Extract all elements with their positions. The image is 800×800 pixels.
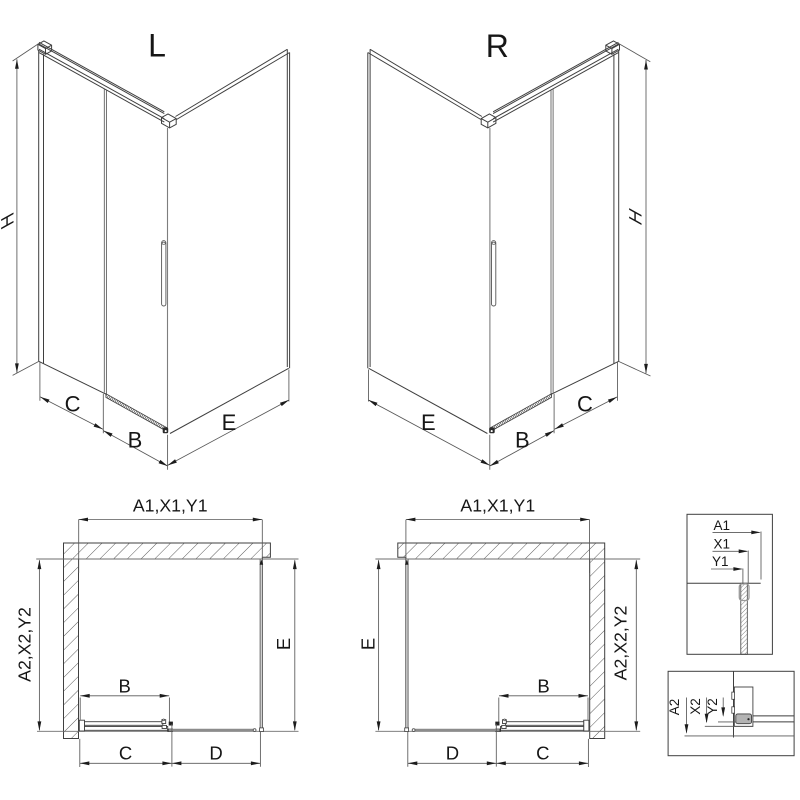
svg-text:B: B xyxy=(515,428,530,453)
svg-text:H: H xyxy=(0,208,18,232)
svg-text:A2,X2,Y2: A2,X2,Y2 xyxy=(611,606,631,681)
svg-text:Y1: Y1 xyxy=(712,554,729,569)
svg-text:E: E xyxy=(421,410,436,435)
svg-text:B: B xyxy=(128,428,143,453)
svg-text:D: D xyxy=(446,743,459,764)
svg-text:E: E xyxy=(222,410,237,435)
svg-text:L: L xyxy=(148,28,166,64)
svg-text:A2,X2,Y2: A2,X2,Y2 xyxy=(14,607,34,682)
svg-text:B: B xyxy=(537,676,549,697)
svg-text:X1: X1 xyxy=(714,536,731,551)
svg-text:D: D xyxy=(209,743,222,764)
svg-text:A2: A2 xyxy=(667,699,682,716)
svg-text:E: E xyxy=(273,638,294,650)
svg-text:C: C xyxy=(65,391,81,416)
svg-text:E: E xyxy=(357,638,378,650)
svg-text:H: H xyxy=(627,205,647,229)
svg-text:C: C xyxy=(119,743,132,764)
svg-text:Y2: Y2 xyxy=(705,698,720,715)
svg-text:A1,X1,Y1: A1,X1,Y1 xyxy=(460,495,535,515)
svg-text:B: B xyxy=(119,676,131,697)
svg-text:R: R xyxy=(486,28,509,64)
svg-text:A1: A1 xyxy=(714,518,731,533)
svg-text:C: C xyxy=(536,743,549,764)
svg-text:A1,X1,Y1: A1,X1,Y1 xyxy=(133,495,208,515)
svg-text:C: C xyxy=(577,391,593,416)
svg-text:X2: X2 xyxy=(688,698,703,715)
